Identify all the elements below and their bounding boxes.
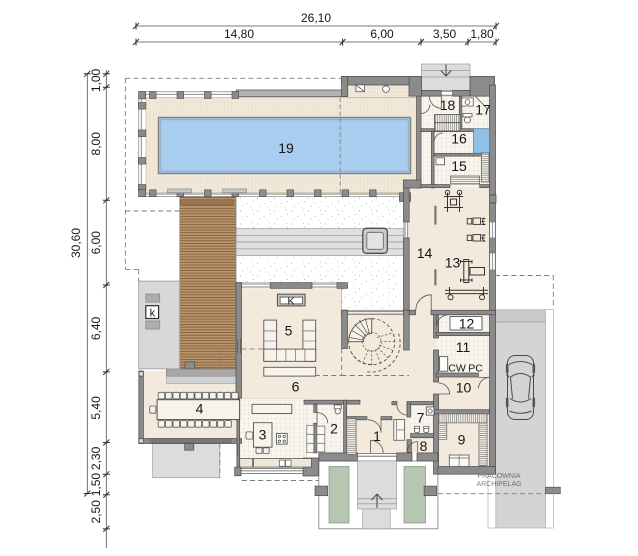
svg-text:10: 10 bbox=[456, 380, 472, 396]
svg-text:5,40: 5,40 bbox=[89, 396, 103, 420]
svg-text:14: 14 bbox=[417, 245, 433, 261]
svg-text:6,40: 6,40 bbox=[89, 316, 103, 340]
svg-text:9: 9 bbox=[458, 432, 466, 448]
svg-text:3,50: 3,50 bbox=[433, 27, 457, 41]
svg-text:26,10: 26,10 bbox=[301, 11, 331, 25]
svg-text:1,50: 1,50 bbox=[89, 473, 103, 497]
svg-text:6,00: 6,00 bbox=[370, 27, 394, 41]
svg-text:1,00: 1,00 bbox=[89, 68, 103, 92]
svg-text:11: 11 bbox=[456, 339, 471, 355]
svg-text:CW: CW bbox=[448, 363, 466, 375]
svg-text:6: 6 bbox=[292, 379, 300, 395]
svg-text:k: k bbox=[150, 307, 156, 319]
svg-text:30,60: 30,60 bbox=[69, 228, 83, 258]
svg-text:15: 15 bbox=[451, 158, 467, 174]
svg-text:18: 18 bbox=[440, 97, 456, 113]
svg-text:2: 2 bbox=[330, 421, 338, 437]
svg-text:PC: PC bbox=[468, 363, 483, 375]
svg-text:K: K bbox=[287, 296, 294, 308]
svg-text:13: 13 bbox=[445, 255, 461, 271]
svg-text:2,30: 2,30 bbox=[89, 446, 103, 470]
svg-text:7: 7 bbox=[417, 410, 425, 426]
svg-text:ARCHIPELAG: ARCHIPELAG bbox=[476, 481, 521, 488]
svg-text:2,50: 2,50 bbox=[89, 500, 103, 524]
svg-text:8,00: 8,00 bbox=[89, 132, 103, 156]
svg-text:17: 17 bbox=[475, 102, 491, 118]
svg-text:12: 12 bbox=[459, 316, 475, 332]
svg-text:1,80: 1,80 bbox=[470, 27, 494, 41]
svg-text:5: 5 bbox=[285, 323, 293, 339]
svg-text:4: 4 bbox=[196, 401, 204, 417]
svg-text:1: 1 bbox=[373, 428, 381, 444]
svg-text:8: 8 bbox=[420, 438, 428, 454]
svg-text:14,80: 14,80 bbox=[224, 27, 254, 41]
svg-text:3: 3 bbox=[259, 427, 267, 443]
svg-text:16: 16 bbox=[451, 131, 467, 147]
svg-text:19: 19 bbox=[278, 140, 294, 156]
svg-text:6,00: 6,00 bbox=[89, 231, 103, 255]
